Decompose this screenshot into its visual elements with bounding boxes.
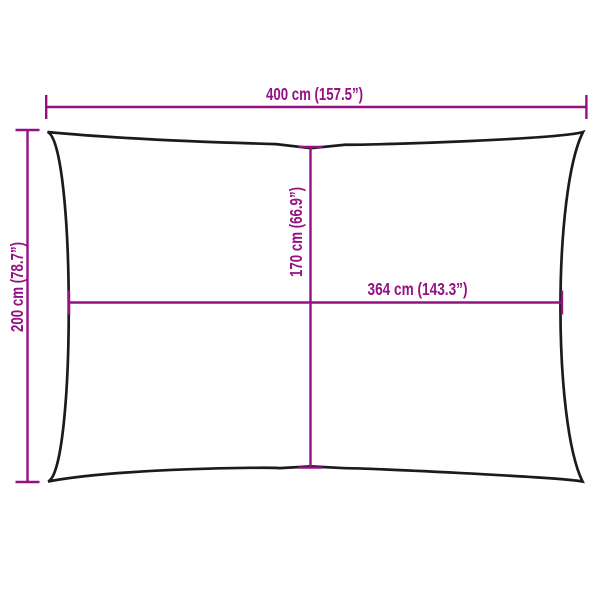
svg-text:364 cm (143.3”): 364 cm (143.3”) (368, 279, 468, 299)
svg-text:170 cm (66.9”): 170 cm (66.9”) (286, 187, 306, 277)
svg-text:400 cm (157.5”): 400 cm (157.5”) (266, 84, 363, 104)
svg-text:200 cm (78.7”): 200 cm (78.7”) (7, 242, 27, 332)
